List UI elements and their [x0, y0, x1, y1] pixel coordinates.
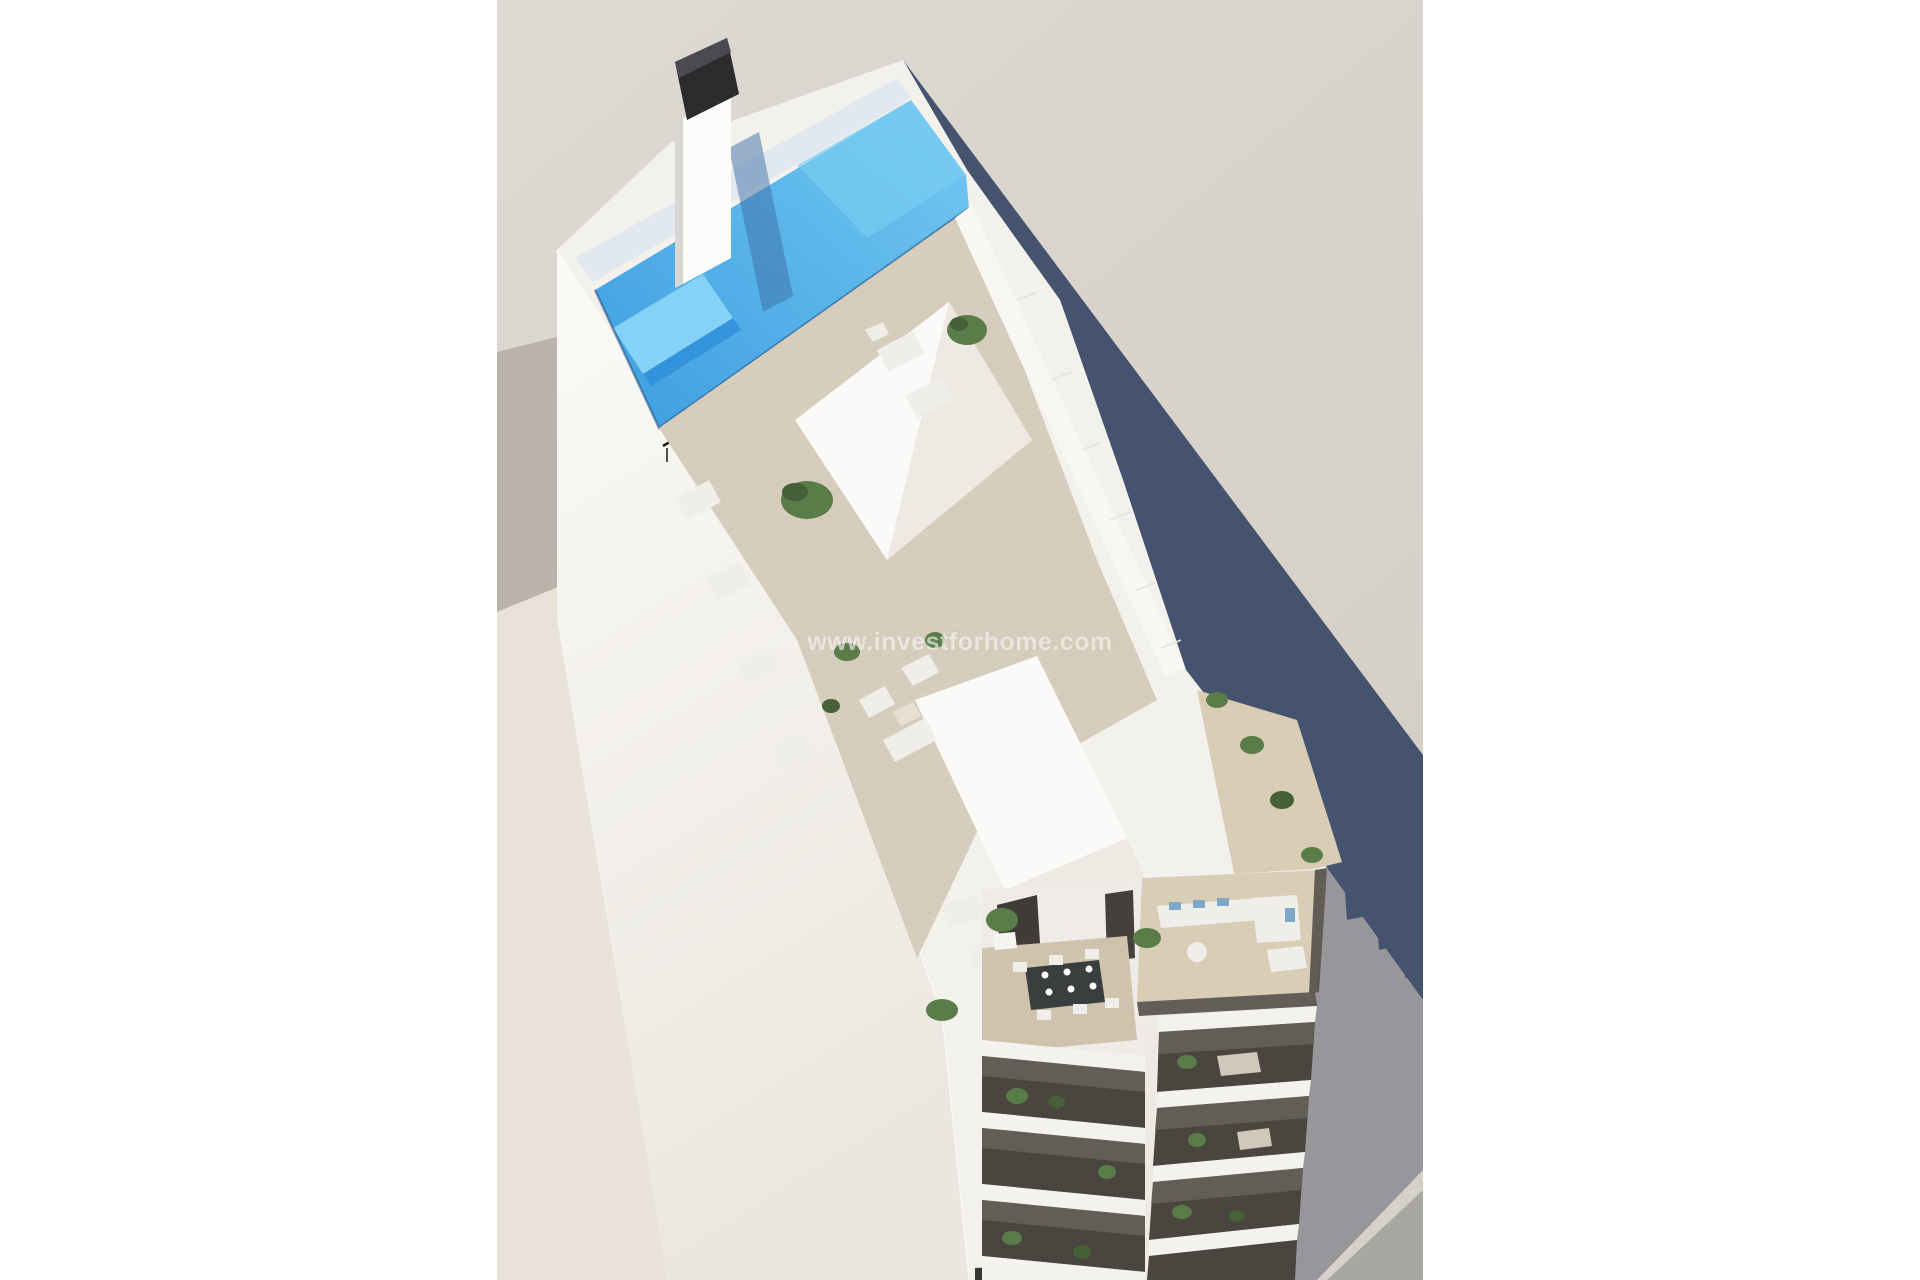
balcony-plant: [1098, 1165, 1116, 1179]
chair: [1049, 955, 1063, 965]
plant: [925, 632, 945, 648]
balcony-plant: [1172, 1205, 1192, 1219]
render-photo: [497, 0, 1423, 1280]
balcony-plant: [1188, 1133, 1206, 1147]
tree: [926, 999, 958, 1021]
balcony-column-right: [1147, 1006, 1317, 1280]
tree-shade: [950, 317, 968, 331]
chimney-shaft: [683, 94, 731, 284]
balcony-plant: [1002, 1231, 1022, 1245]
chair: [1073, 1004, 1087, 1014]
planter: [1240, 736, 1264, 754]
tree-pot: [993, 932, 1017, 950]
balcony-plant: [1229, 1210, 1245, 1222]
shadow-step-2: [1377, 912, 1405, 950]
chair: [1013, 962, 1027, 972]
balcony-lounger: [1217, 1052, 1261, 1076]
plate: [1068, 986, 1075, 993]
plate: [1042, 972, 1049, 979]
chimney-shaft-side: [675, 118, 683, 288]
balcony-plant: [1177, 1055, 1197, 1069]
plant: [822, 699, 840, 713]
sofa-pillow: [1217, 898, 1229, 906]
penthouse-plant: [1133, 928, 1161, 948]
planter: [1301, 847, 1323, 863]
round-table: [1187, 942, 1207, 962]
chair: [1037, 1010, 1051, 1020]
plate: [1064, 969, 1071, 976]
screenshot-canvas: www.investforhome.com: [0, 0, 1920, 1280]
planter: [1206, 692, 1228, 708]
sofa-pillow: [1169, 902, 1181, 910]
balcony-plant: [1049, 1096, 1065, 1108]
chimney: [675, 38, 739, 288]
plate: [1046, 989, 1053, 996]
penthouse-terrace: [1133, 868, 1327, 1016]
shadow-step-1: [1345, 886, 1377, 920]
chair: [1105, 998, 1119, 1008]
balcony-column-left: [982, 1040, 1145, 1280]
sofa-pillow: [1285, 908, 1295, 922]
street-facade: [975, 868, 1327, 1280]
balcony-plant: [1006, 1088, 1028, 1104]
sofa-pillow: [1193, 900, 1205, 908]
planter: [1270, 791, 1294, 809]
chair: [1085, 949, 1099, 959]
shadow-step-3: [1403, 941, 1423, 978]
balcony-plant: [1073, 1245, 1091, 1259]
plate: [1090, 983, 1097, 990]
plant: [834, 643, 860, 661]
tree-shade: [782, 483, 808, 501]
dining-tree: [986, 908, 1018, 932]
plate: [1086, 966, 1093, 973]
penthouse-lounger: [1267, 946, 1307, 972]
